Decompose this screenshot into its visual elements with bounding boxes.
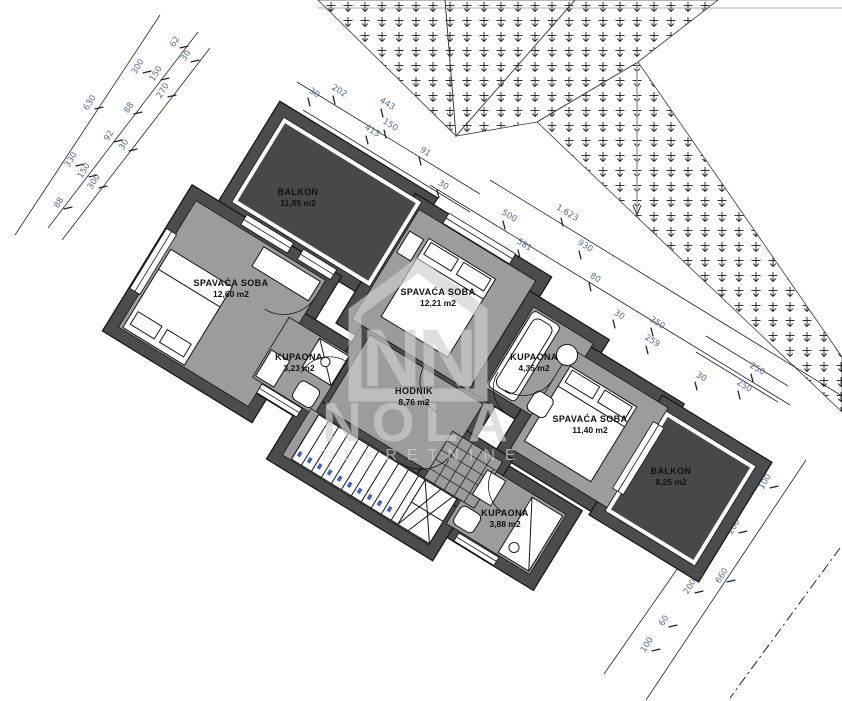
- dimension-label: 30: [179, 49, 193, 63]
- dimension-label: 88: [52, 196, 66, 210]
- dimension-label: 500: [500, 208, 519, 225]
- dimension-label: 259: [643, 333, 662, 350]
- dimension-tick: [727, 580, 736, 582]
- dimension-tick: [308, 98, 310, 107]
- watermark-brand: NOLA: [322, 391, 518, 453]
- dimension-tick: [561, 218, 563, 227]
- dimension-label: 30: [694, 370, 708, 384]
- dimension-label: 1.623: [554, 203, 580, 224]
- dimension-tick: [191, 60, 200, 62]
- dimension-label: 300: [130, 57, 147, 76]
- floorplan-page: 6303308830015062302708892301503003020244…: [0, 0, 842, 701]
- dimension-tick: [381, 109, 383, 118]
- dimension-label: 150: [148, 64, 165, 83]
- watermark-subtitle: NEKRETNINE: [322, 447, 525, 464]
- dimension-tick: [652, 649, 661, 651]
- dimension-label: 413: [363, 123, 382, 140]
- dimension-tick: [503, 221, 505, 230]
- dimension-tick: [384, 130, 386, 139]
- floorplan-canvas: 6303308830015062302708892301503003020244…: [0, 0, 842, 701]
- dimension-tick: [738, 391, 740, 400]
- dimension-label: 630: [82, 93, 99, 112]
- dimension-tick: [589, 283, 591, 292]
- dimension-label: 30: [307, 86, 321, 100]
- dimension-label: 350: [648, 315, 667, 332]
- dimension-tick: [366, 136, 368, 145]
- dimension-label: 100: [639, 635, 656, 654]
- dimension-tick: [739, 531, 748, 533]
- boundary-dashdot-line: [730, 548, 840, 698]
- dimension-label: 443: [378, 96, 397, 113]
- dimension-label: 88: [122, 101, 136, 115]
- dimension-tick: [770, 486, 779, 488]
- dimension-label: 930: [576, 238, 595, 255]
- dimension-label: 202: [330, 83, 349, 100]
- dimension-tick: [613, 320, 615, 329]
- dimension-tick: [129, 149, 138, 151]
- dimension-tick: [646, 346, 648, 355]
- dimension-tick: [134, 112, 143, 114]
- dimension-tick: [180, 46, 189, 48]
- dimension-label: 581: [515, 237, 534, 254]
- dimension-label: 330: [63, 150, 80, 169]
- dimension-tick: [695, 382, 697, 391]
- dimension-tick: [64, 207, 73, 209]
- dimension-tick: [333, 96, 335, 105]
- dimension-label: 80: [588, 271, 602, 285]
- dimension-label: 62: [168, 35, 182, 49]
- dimension-tick: [669, 625, 678, 627]
- dimension-label: 30: [612, 308, 626, 322]
- dimension-label: 150: [381, 117, 400, 134]
- dimension-label: 250: [748, 361, 767, 378]
- dimension-label: 60: [657, 614, 671, 628]
- dimension-tick: [579, 251, 581, 260]
- dimension-tick: [695, 591, 704, 593]
- dimension-label: 250: [735, 378, 754, 395]
- dimension-label: 30: [117, 138, 131, 152]
- dimension-label: 270: [155, 81, 172, 100]
